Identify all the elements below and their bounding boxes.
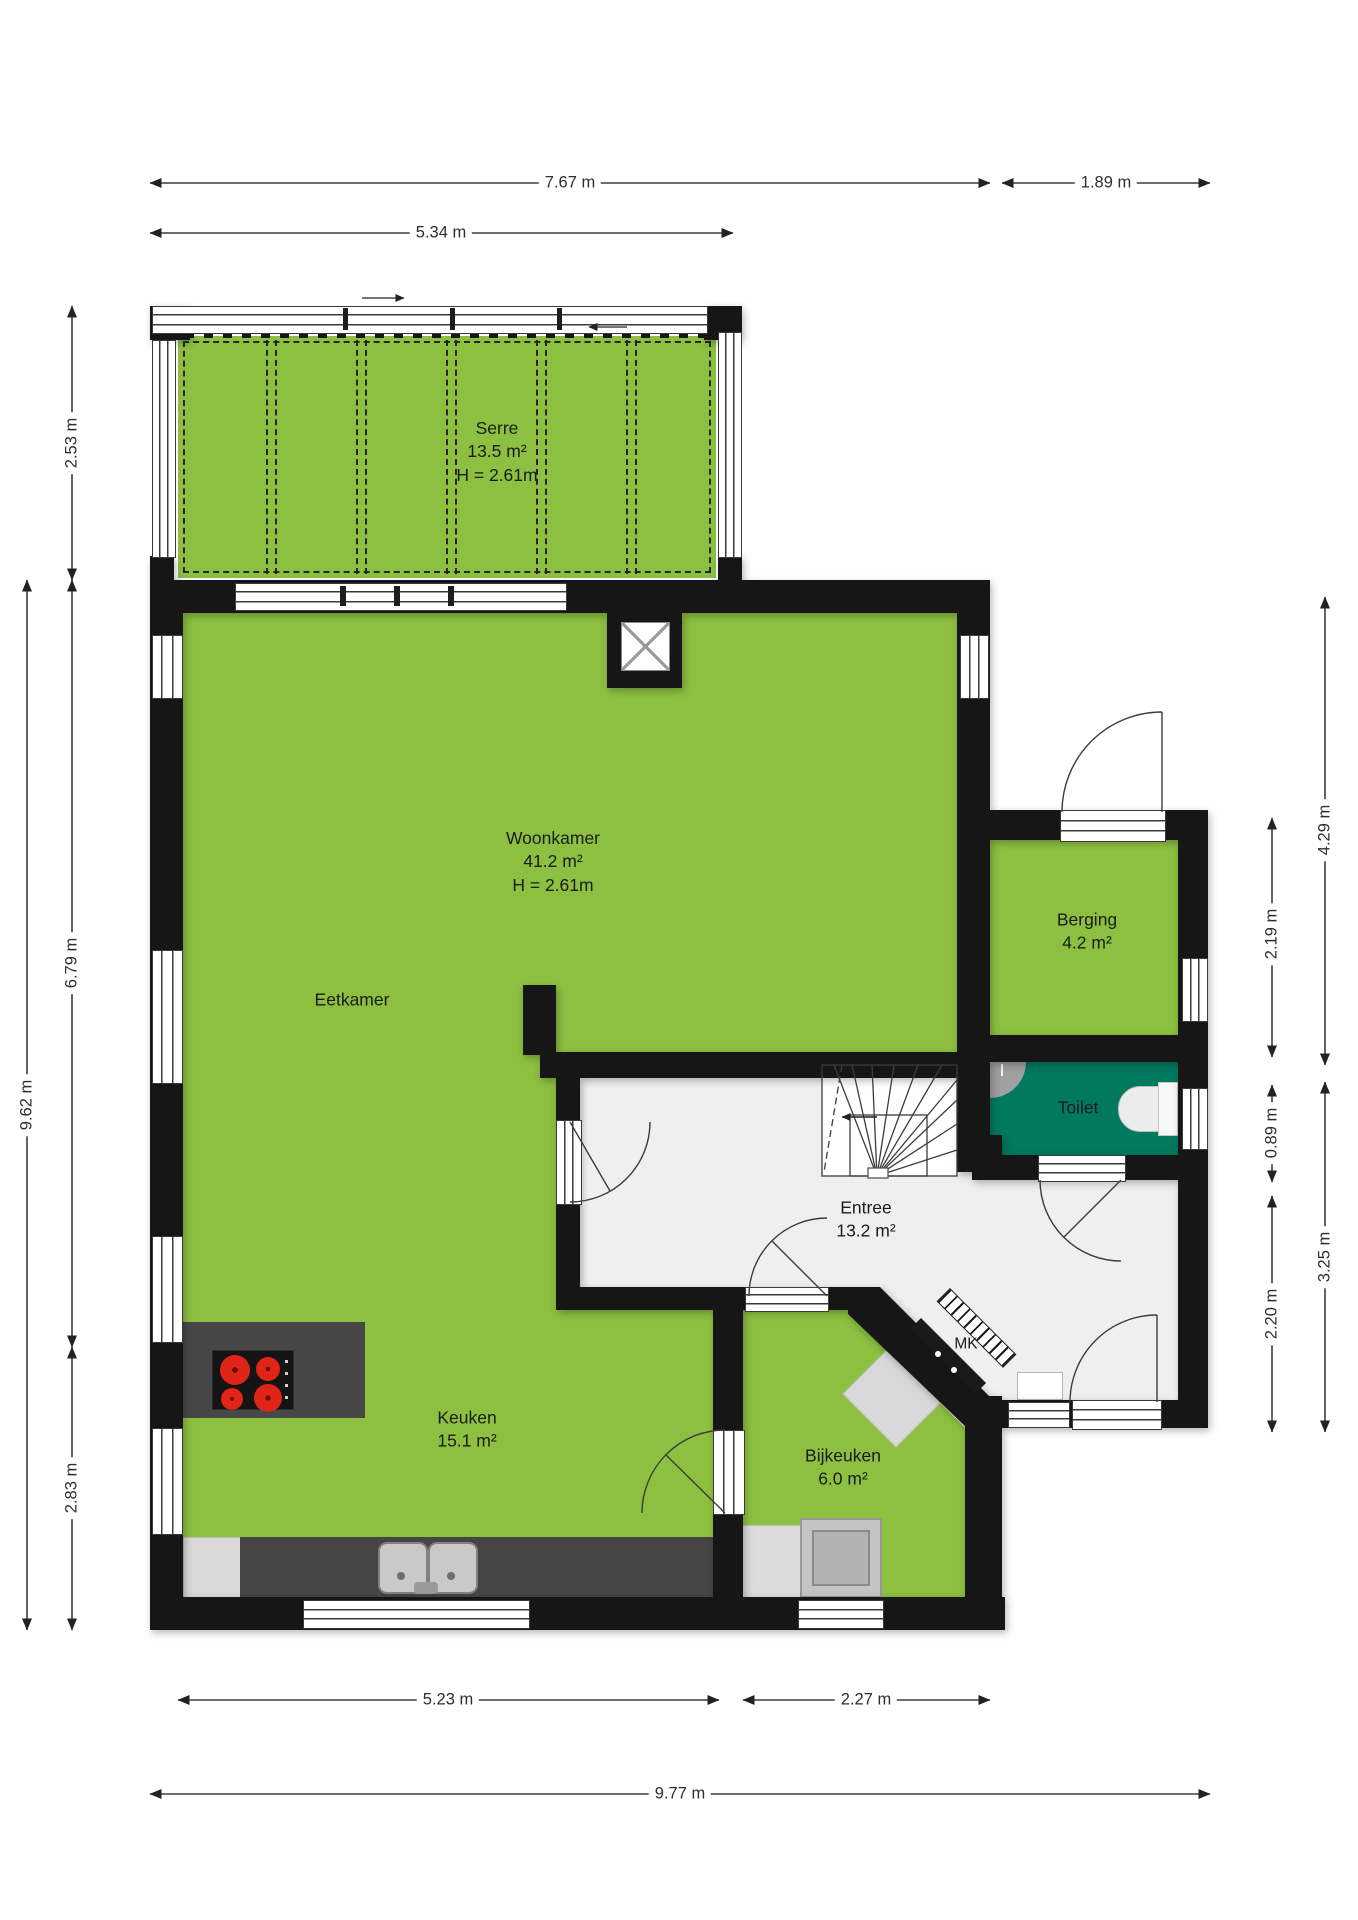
serre-name: Serre [456,417,537,440]
wall-serre-corner-br [718,556,742,582]
counter-end-left [183,1537,242,1599]
wall-berging-toilet [990,1035,1178,1062]
bijkeuken-area: 6.0 m² [805,1468,881,1491]
serre-front-mullion-2 [450,308,455,330]
dim-right-entree: 2.20 m [1263,1283,1282,1345]
dim-left-keuken: 2.83 m [63,1457,82,1519]
serre-area: 13.5 m² [456,440,537,463]
dim-right-lower: 3.25 m [1316,1226,1335,1288]
dim-left-serre: 2.53 m [63,412,82,474]
door-front [1072,1400,1162,1430]
sliding-door-mullion-1 [340,586,346,606]
serre-left-window [152,340,176,558]
sink-left-drain [397,1572,405,1580]
floorplan-canvas: Serre 13.5 m² H = 2.61m Woonkamer 41.2 m… [0,0,1358,1920]
serre-roof-rib-4 [536,340,547,574]
window-front-sidelight [1008,1402,1070,1428]
meterkast-hinge-2 [951,1367,957,1373]
window-right-woonkamer [960,635,989,699]
toilet-name: Toilet [1058,1096,1099,1119]
doormat [1017,1372,1063,1400]
door-keuken-bijkeuken [713,1430,745,1515]
woonkamer-ceiling: H = 2.61m [506,874,600,897]
serre-roof-rib-1 [266,340,277,574]
sliding-door-mullion-3 [448,586,454,606]
wall-serre-corner-bl [150,556,174,582]
entree-name: Entree [836,1197,895,1220]
dim-right-upper: 4.29 m [1316,799,1335,861]
woonkamer-area: 41.2 m² [506,850,600,873]
cooktop-burner-3 [221,1388,243,1410]
meterkast-hinge-1 [935,1351,941,1357]
entree-label: Entree 13.2 m² [836,1197,895,1244]
meterkast-name: MK [954,1335,977,1356]
serre-front-mullion-3 [557,308,562,330]
window-left-2 [152,950,183,1084]
door-berging-exterior [1060,810,1166,842]
meterkast-label: MK [954,1335,977,1356]
berging-name: Berging [1057,909,1117,932]
bijkeuken-label: Bijkeuken 6.0 m² [805,1445,881,1492]
serre-roof-rib-3 [446,340,457,574]
serre-roof-rib-5 [626,340,637,574]
window-left-4 [152,1428,183,1535]
eetkamer-name: Eetkamer [315,988,390,1011]
serre-ceiling: H = 2.61m [456,464,537,487]
dim-right-toilet: 0.89 m [1263,1102,1282,1164]
keuken-area: 15.1 m² [437,1430,496,1453]
toilet-basin-tap [1001,1064,1003,1076]
woonkamer-label: Woonkamer 41.2 m² H = 2.61m [506,827,600,897]
sliding-door-mullion-2 [394,586,400,606]
sink-right-drain [447,1572,455,1580]
cooktop-burner-1 [220,1355,250,1385]
window-berging [1182,958,1208,1022]
keuken-label: Keuken 15.1 m² [437,1407,496,1454]
cooktop-burner-2 [256,1357,280,1381]
serre-front-mullion-1 [343,308,348,330]
dim-bottom-total: 9.77 m [649,1785,711,1804]
dim-left-total: 9.62 m [18,1074,37,1136]
serre-sliding-doors [235,583,567,611]
door-eetkamer-entree [556,1120,582,1205]
wall-entree-south [556,1287,878,1310]
washing-machine-door [812,1530,870,1586]
wall-stair-stub [972,1135,1002,1180]
door-swing-berging [1062,712,1162,812]
serre-front-window [152,306,708,334]
toilet-cistern [1158,1082,1178,1136]
window-toilet [1182,1088,1208,1150]
wall-bijkeuken-east [965,1396,1002,1630]
entree-wing-floor [957,1172,1208,1428]
stairs-area [822,1065,957,1176]
berging-area: 4.2 m² [1057,932,1117,955]
eetkamer-label: Eetkamer [315,988,390,1011]
window-left-1 [152,635,183,699]
entree-area: 13.2 m² [836,1220,895,1243]
dim-bottom-keuken: 5.23 m [417,1691,479,1710]
woonkamer-name: Woonkamer [506,827,600,850]
door-toilet [1038,1155,1126,1182]
door-entree-bijkeuken [745,1287,829,1312]
dim-top-wing: 1.89 m [1075,174,1137,193]
keuken-name: Keuken [437,1407,496,1430]
dim-top-total: 7.67 m [539,174,601,193]
serre-right-window [718,332,742,558]
wall-eetkamer-stub [523,985,556,1055]
berging-label: Berging 4.2 m² [1057,909,1117,956]
dim-right-berging: 2.19 m [1263,903,1282,965]
faucet [414,1582,438,1594]
cooktop-controls [285,1360,288,1400]
serre-label: Serre 13.5 m² H = 2.61m [456,417,537,487]
toilet-label: Toilet [1058,1096,1099,1119]
dim-left-main: 6.79 m [63,932,82,994]
serre-roof-rib-2 [356,340,367,574]
bijkeuken-name: Bijkeuken [805,1445,881,1468]
dim-bottom-bijkeuken: 2.27 m [835,1691,897,1710]
serre-floor [178,336,716,578]
wall-entree-north [540,1052,990,1078]
window-left-3 [152,1236,183,1343]
window-bottom-bijkeuken [798,1600,884,1629]
chimney-shaft [621,622,670,671]
window-bottom-keuken [303,1600,530,1629]
dim-top-serre: 5.34 m [410,224,472,243]
cooktop-burner-4 [254,1384,282,1412]
